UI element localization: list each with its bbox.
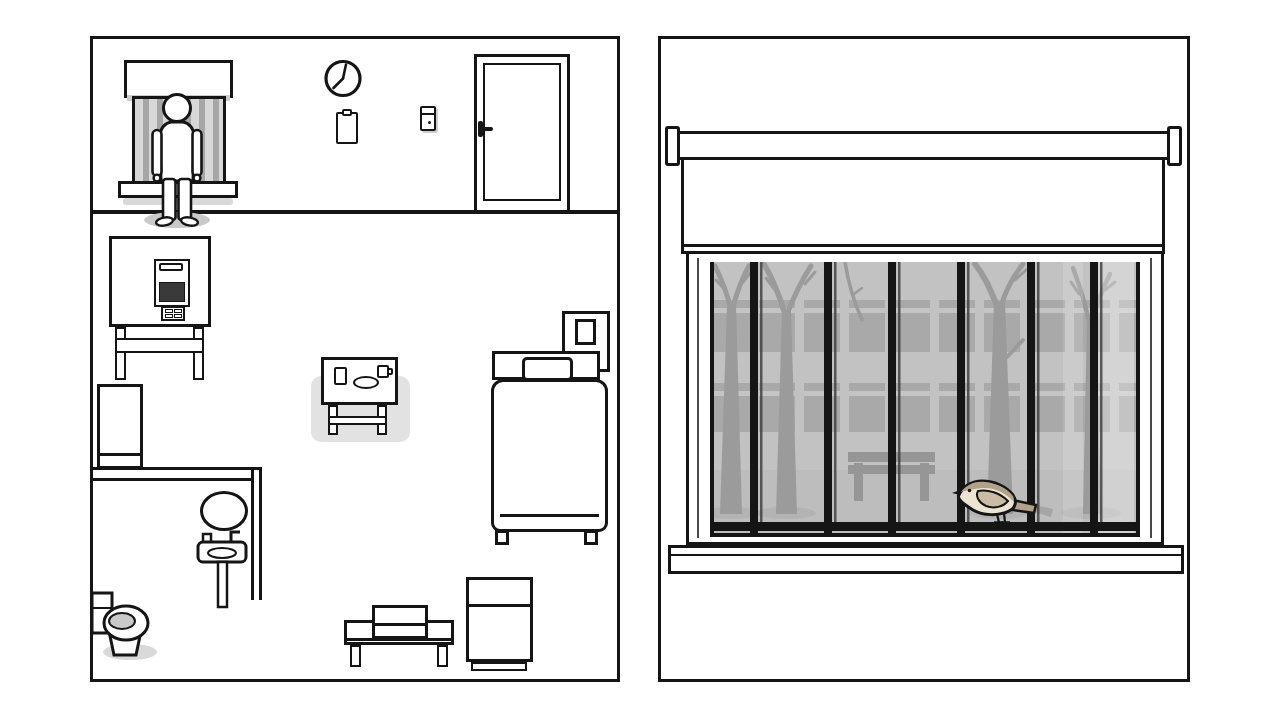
right-panel-border	[658, 36, 1190, 682]
left-panel-border	[90, 36, 620, 682]
game-stage	[0, 0, 1280, 720]
